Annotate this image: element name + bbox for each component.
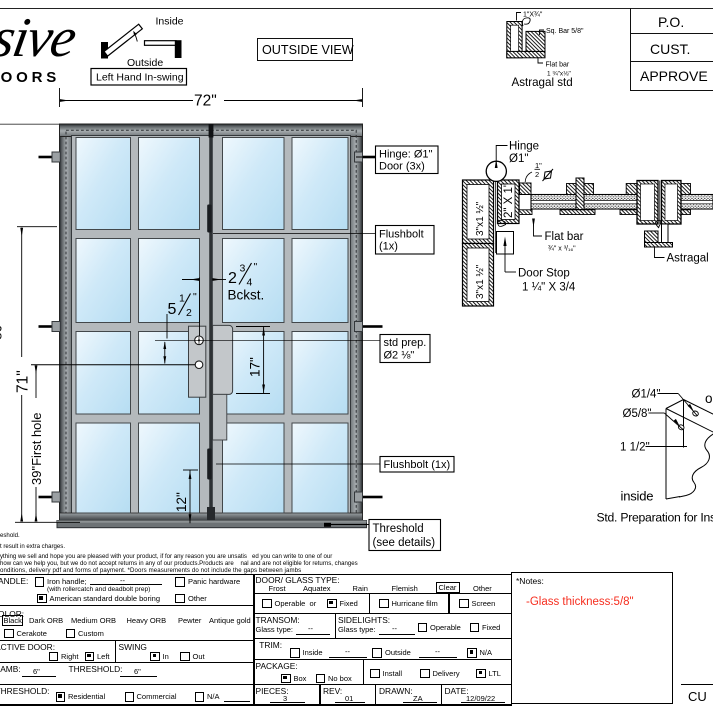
svg-text:1"X¾": 1"X¾" (523, 12, 543, 19)
svg-text:Threshold: Threshold (373, 523, 424, 535)
svg-text:5: 5 (168, 301, 177, 318)
svg-text:80": 80" (0, 320, 5, 340)
svg-text:Ø1/4": Ø1/4" (632, 389, 661, 401)
svg-text:Ø5/8": Ø5/8" (623, 408, 652, 420)
svg-text:2: 2 (186, 307, 192, 319)
svg-text:Door Stop: Door Stop (518, 268, 570, 280)
svg-text:(1x): (1x) (379, 241, 398, 253)
svg-text:Hinge: Ø1": Hinge: Ø1" (379, 149, 433, 161)
svg-text:Outside: Outside (127, 57, 163, 69)
svg-text:71": 71" (15, 370, 32, 393)
svg-text:Bckst.: Bckst. (228, 288, 265, 303)
svg-text:1 ¼" X 3/4: 1 ¼" X 3/4 (522, 282, 576, 294)
svg-text:std prep.: std prep. (384, 337, 427, 349)
svg-text:": " (254, 261, 258, 273)
svg-text:Ø2 ⅛": Ø2 ⅛" (384, 350, 415, 362)
svg-text:Inside: Inside (156, 16, 184, 28)
svg-text:39"First hole: 39"First hole (29, 412, 44, 485)
svg-text:2: 2 (535, 170, 539, 179)
svg-text:3"x1 ½": 3"x1 ½" (475, 201, 486, 236)
svg-text:outside: outside (705, 391, 713, 406)
svg-text:17": 17" (248, 357, 263, 377)
svg-text:3: 3 (240, 263, 246, 275)
svg-text:2: 2 (228, 270, 237, 287)
svg-text:Astragal std: Astragal std (512, 76, 573, 89)
svg-text:1: 1 (179, 293, 185, 305)
svg-text:Flat bar: Flat bar (546, 62, 570, 69)
svg-text:2" X 1": 2" X 1" (503, 183, 515, 218)
svg-text:12": 12" (174, 492, 189, 512)
svg-text:Flushbolt: Flushbolt (379, 229, 424, 241)
svg-text:Sq. Bar 5/8": Sq. Bar 5/8" (546, 28, 584, 35)
svg-text:Ø1": Ø1" (509, 153, 528, 165)
svg-text:": " (193, 291, 197, 303)
svg-text:Std. Preparation for Inswing d: Std. Preparation for Inswing doors (597, 511, 713, 525)
svg-text:(see details): (see details) (373, 537, 436, 549)
svg-text:3"x1 ½": 3"x1 ½" (475, 264, 486, 299)
svg-text:Flat bar: Flat bar (545, 231, 584, 243)
svg-text:72": 72" (194, 93, 217, 110)
svg-text:1 1/2": 1 1/2" (620, 442, 650, 454)
svg-text:inside: inside (621, 489, 654, 504)
svg-text:Door (3x): Door (3x) (379, 161, 425, 173)
svg-text:Astragal: Astragal (667, 253, 709, 265)
svg-text:Left Hand In-swing: Left Hand In-swing (96, 72, 184, 84)
svg-text:¾" x ³/₁₆": ¾" x ³/₁₆" (548, 246, 576, 253)
svg-text:Flushbolt (1x): Flushbolt (1x) (384, 459, 451, 471)
svg-text:1": 1" (535, 161, 542, 170)
svg-text:Hinge: Hinge (509, 141, 539, 153)
